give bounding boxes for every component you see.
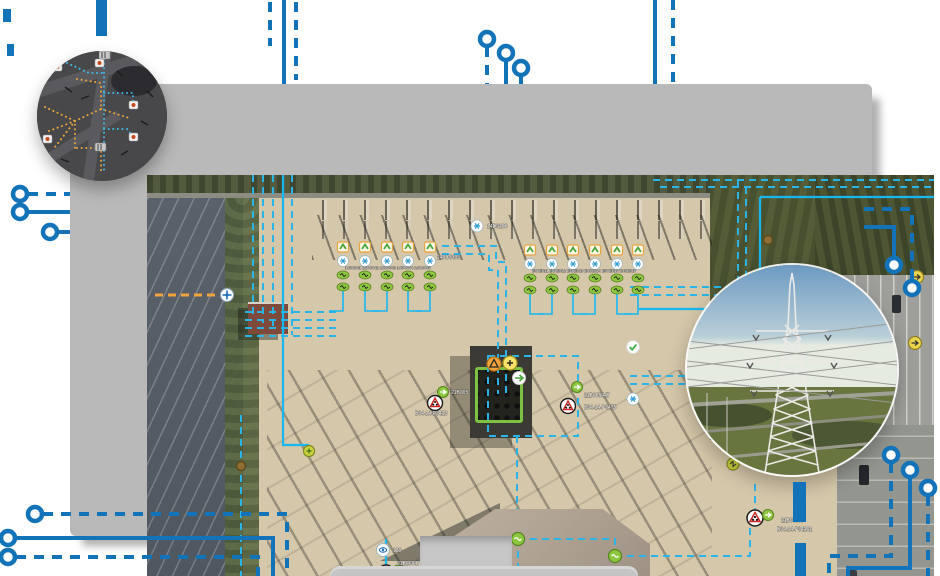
feeder-drop-line (538, 294, 552, 314)
switch-oval-icon[interactable] (589, 274, 601, 294)
device-chevron-icon[interactable] (633, 245, 644, 255)
schematic-pond (111, 66, 157, 96)
device-chevron-icon[interactable] (612, 245, 623, 255)
switch-oval-icon[interactable] (381, 271, 393, 291)
bolt-icon[interactable] (909, 337, 922, 350)
inset-schematic-map[interactable] (37, 51, 167, 181)
device-chevron-icon[interactable] (525, 245, 536, 255)
switch-oval-icon[interactable] (632, 274, 644, 294)
right-group-labels: E40E011 E40E012 E40E013 E40E014 E40E015 … (532, 268, 637, 273)
feeder-dial-icon[interactable] (471, 220, 483, 232)
asset-id: 21B005447 (584, 393, 610, 399)
transformer-alert-icon[interactable] (747, 510, 763, 526)
warning-triangle-icon[interactable] (487, 357, 501, 371)
illustration-canvas: { "scene": { "subject": "Desktop monitor… (0, 0, 940, 576)
switch-oval-icon[interactable] (567, 274, 579, 294)
switch-oval-icon[interactable] (546, 274, 558, 294)
schematic-svg (37, 51, 167, 181)
feeder-drop-line (624, 294, 638, 314)
device-group-left (329, 242, 436, 311)
switch-oval-icon[interactable] (424, 271, 436, 291)
device-group-right (524, 245, 644, 314)
green-node-icon[interactable] (512, 533, 525, 546)
meter-label: 129 (393, 548, 402, 554)
target-icon[interactable] (221, 289, 234, 302)
feeder-drop-line (373, 291, 387, 311)
asset-name: B34-14-P3475 (584, 405, 616, 411)
feeder-drop-line (573, 294, 587, 314)
asset-id: 21B005 (451, 390, 468, 396)
feeder-drop-line (408, 291, 422, 311)
monitor-stand-base (330, 566, 638, 576)
inset-3d-tower[interactable] (685, 263, 899, 477)
feeder-drop-line (617, 294, 631, 314)
feeder-drop-line (329, 291, 343, 311)
device-chevron-icon[interactable] (568, 245, 579, 255)
bolt-icon[interactable] (911, 271, 924, 284)
feeder-drop-line (530, 294, 544, 314)
device-dial-icon[interactable] (627, 393, 639, 405)
switch-oval-icon[interactable] (337, 271, 349, 291)
green-node-icon[interactable] (609, 550, 622, 563)
device-chevron-icon[interactable] (590, 245, 601, 255)
monitor-stand-neck (420, 536, 512, 567)
feeder-drop-line (416, 291, 430, 311)
transformer-alert-icon[interactable] (428, 396, 443, 411)
panel-yellow-icon[interactable] (503, 356, 517, 370)
switch-oval-icon[interactable] (611, 274, 623, 294)
arrow-icon[interactable] (513, 372, 526, 385)
arrow-icon[interactable] (438, 387, 449, 398)
switch-oval-icon[interactable] (402, 271, 414, 291)
device-chevron-icon[interactable] (360, 242, 371, 252)
check-icon[interactable] (627, 341, 640, 354)
eye-icon[interactable] (377, 544, 390, 557)
feeder-drop-line (365, 291, 379, 311)
asset-name: B34-14-P3413 (415, 411, 447, 417)
arrow-icon[interactable] (763, 510, 774, 521)
device-chevron-icon[interactable] (547, 245, 558, 255)
device-chevron-icon[interactable] (425, 242, 436, 252)
device-chevron-icon[interactable] (338, 242, 349, 252)
device-chevron-icon[interactable] (403, 242, 414, 252)
asset-name: B34-14-P34101 (777, 527, 812, 533)
feeder-drop-line (581, 294, 595, 314)
yellow-node-icon[interactable] (304, 446, 315, 457)
asset-id: 21B08567 (781, 518, 804, 524)
feeder-label: 14D9100 (487, 224, 508, 230)
switch-oval-icon[interactable] (359, 271, 371, 291)
switch-oval-icon[interactable] (524, 274, 536, 294)
arrow-icon[interactable] (572, 382, 583, 393)
tower-svg (687, 265, 897, 475)
bus-label: 140C0399 (437, 255, 460, 261)
device-chevron-icon[interactable] (382, 242, 393, 252)
transformer-alert-icon[interactable] (561, 399, 576, 414)
left-group-labels: 140C041 140C042 140C043 140C044 140C045 (345, 265, 431, 270)
